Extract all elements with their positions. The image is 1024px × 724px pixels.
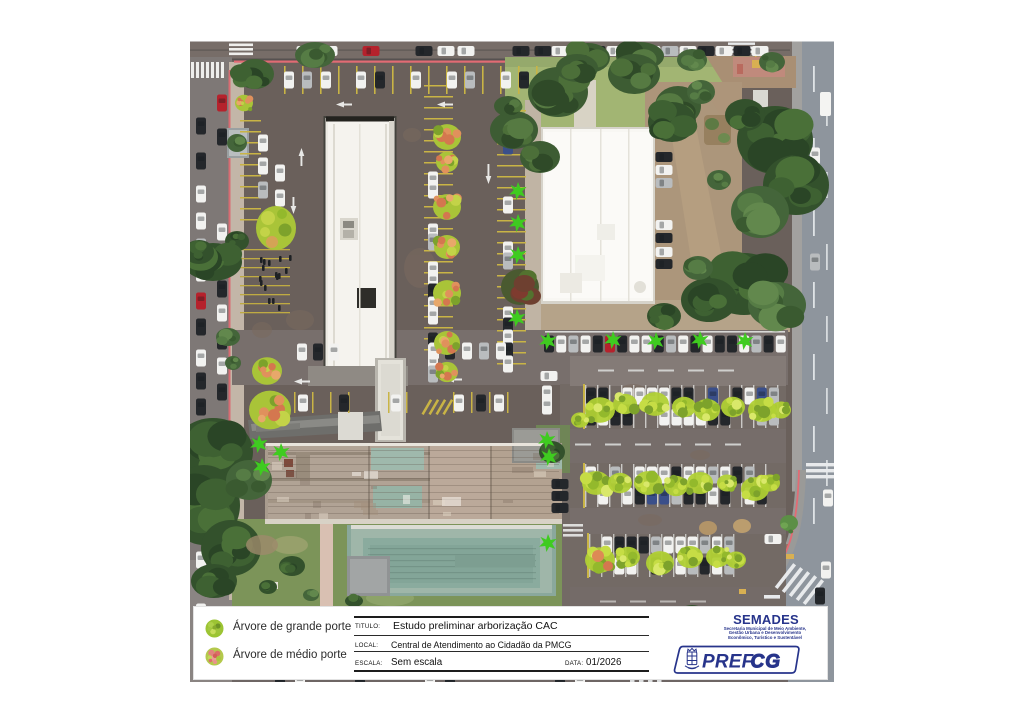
svg-text:PREF: PREF: [702, 652, 755, 673]
svg-text:CG: CG: [751, 652, 782, 673]
